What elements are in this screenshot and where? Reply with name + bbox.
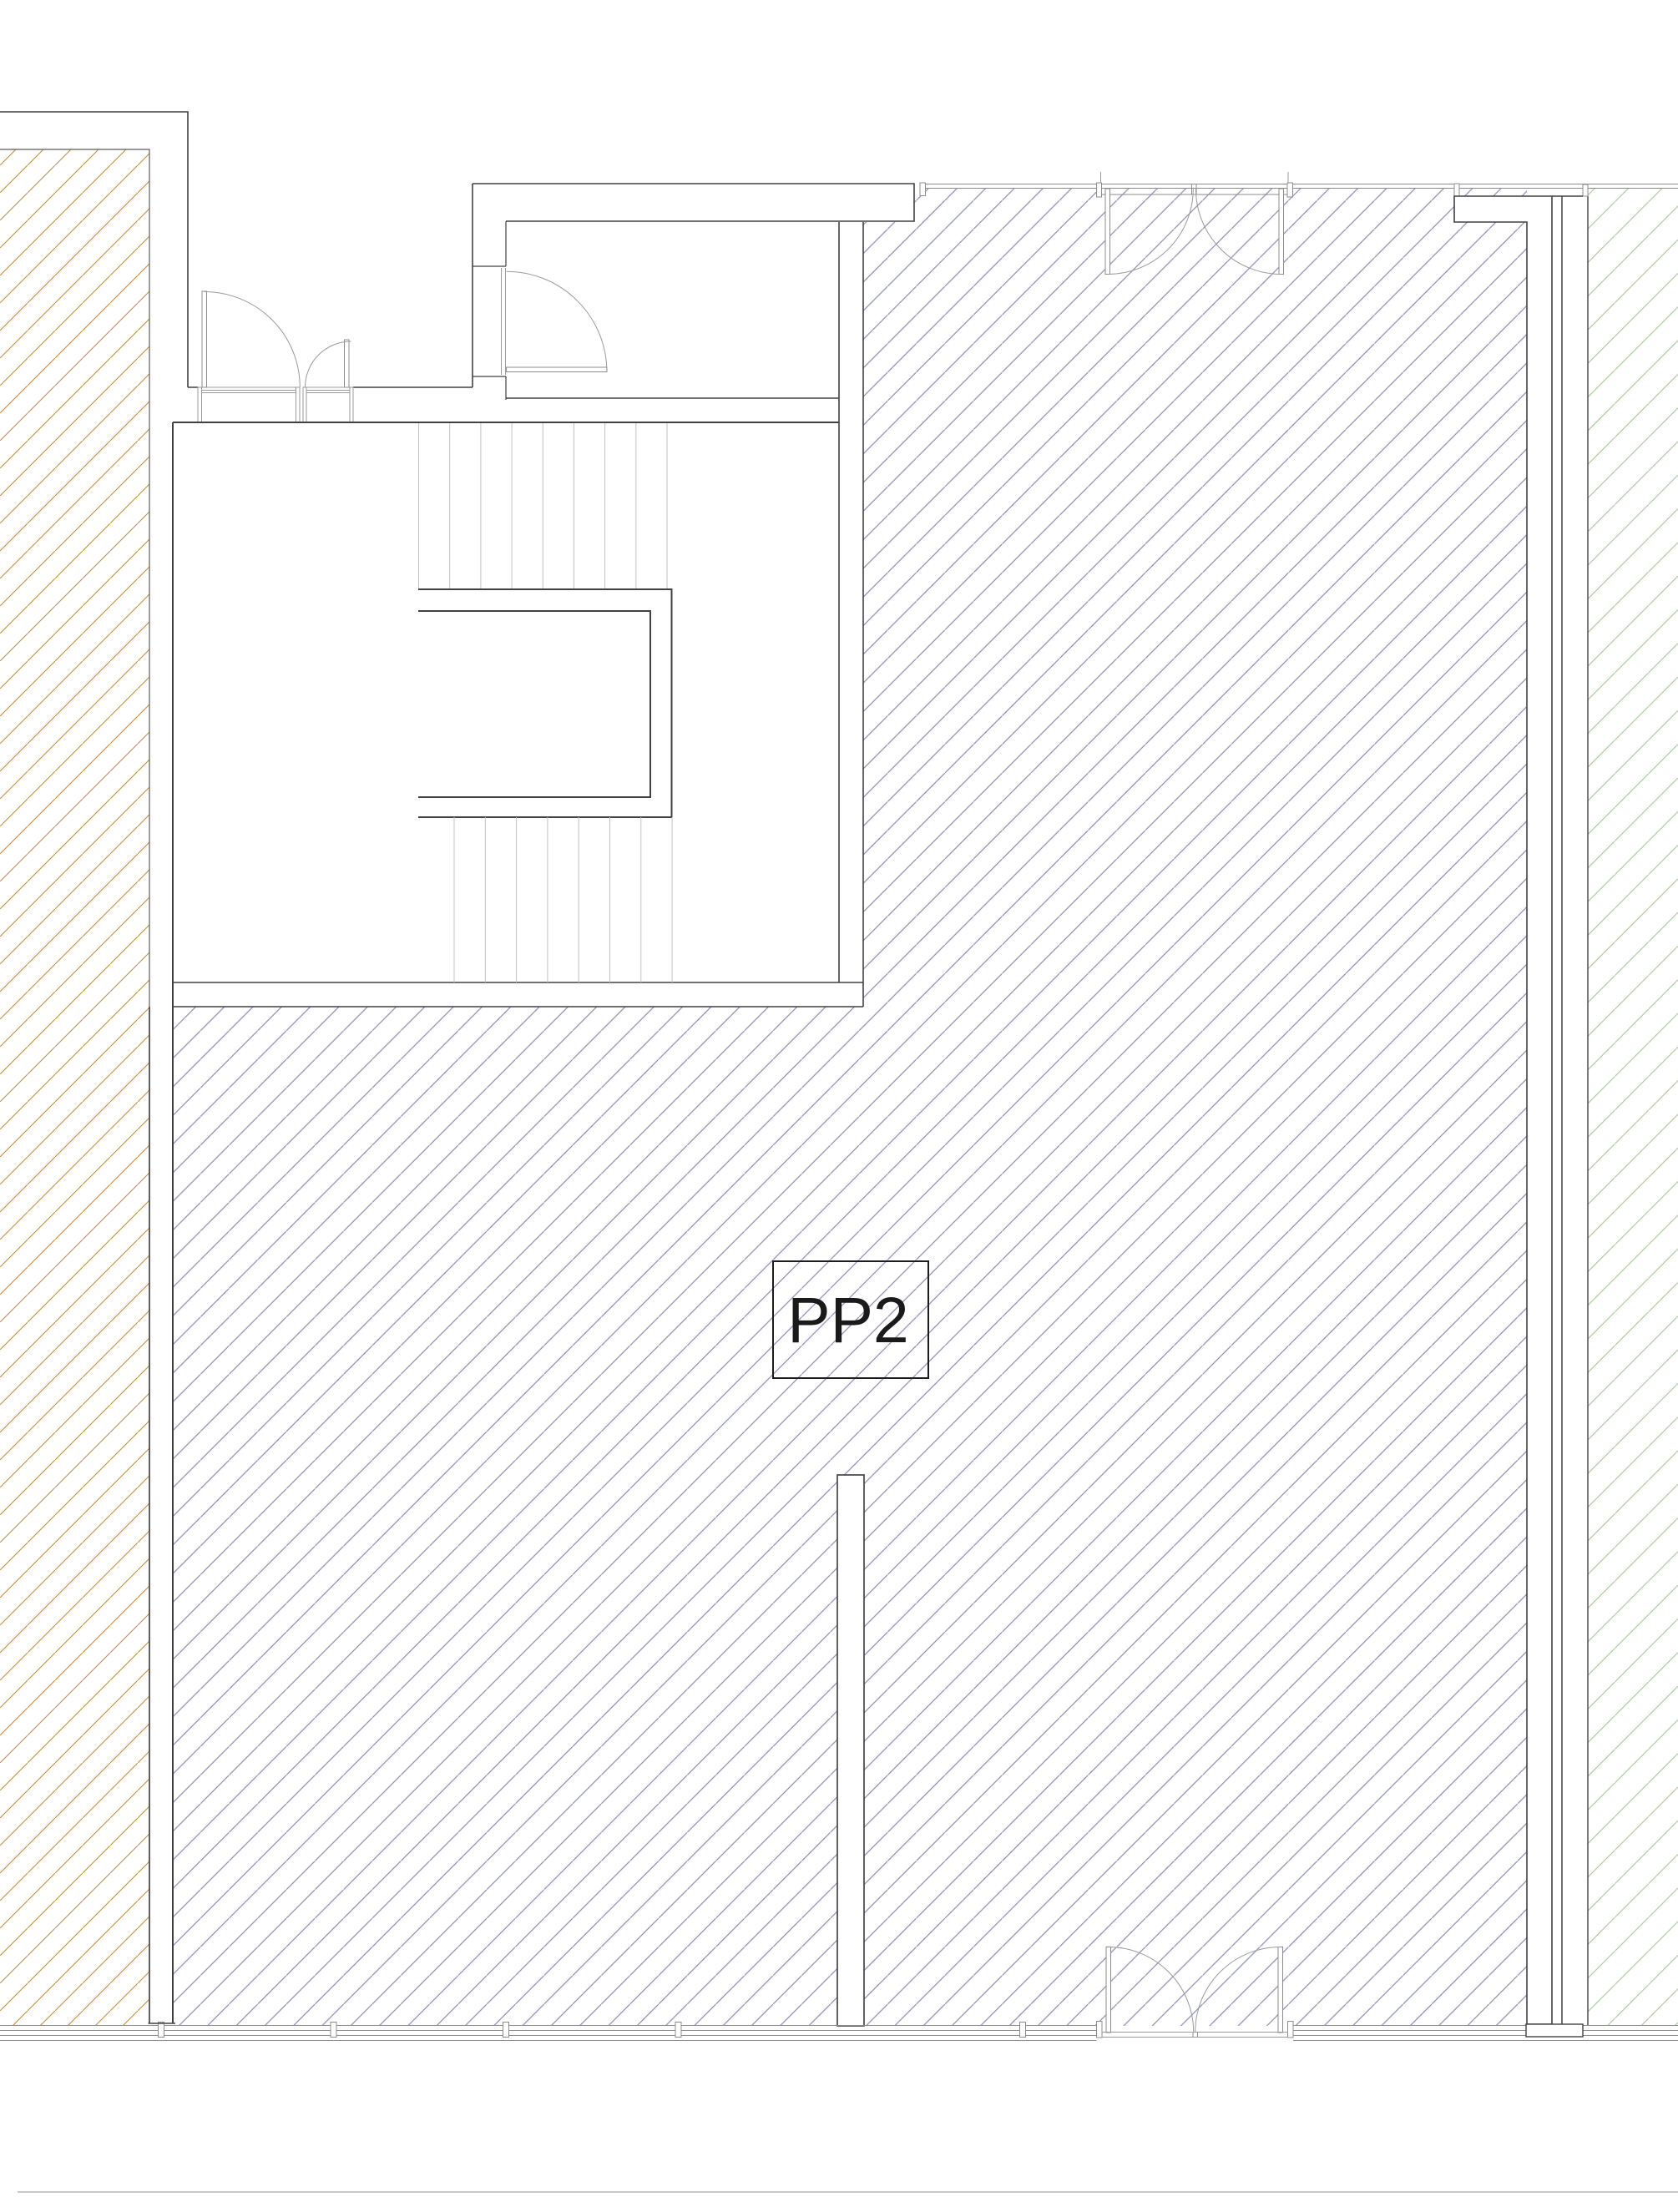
svg-text:PP2: PP2: [787, 1285, 909, 1356]
